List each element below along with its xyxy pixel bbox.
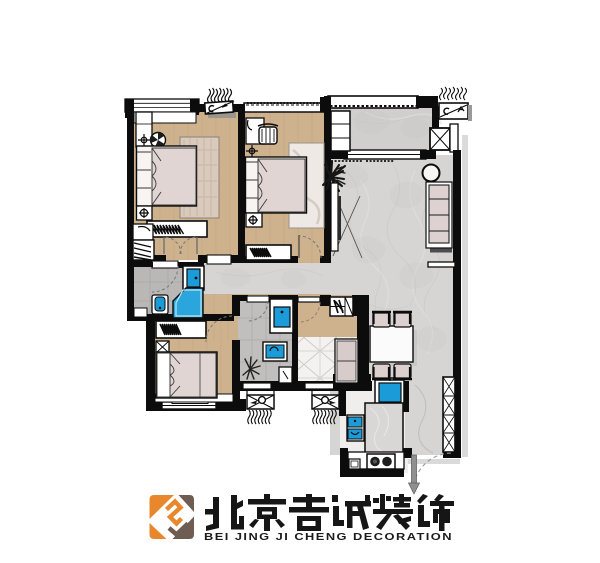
svg-text:BEI JING JI CHENG DECORATION: BEI JING JI CHENG DECORATION (204, 531, 453, 543)
